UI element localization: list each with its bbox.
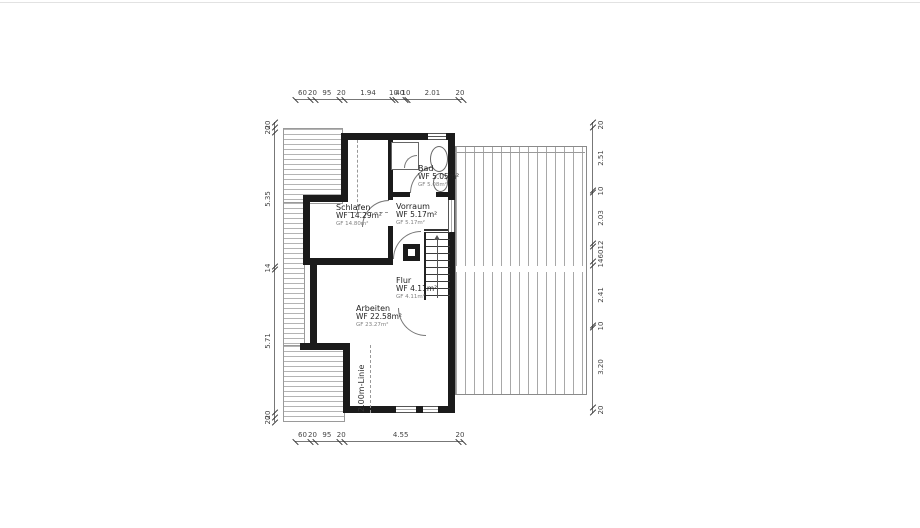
room-wf-area: WF 5.17m² (396, 211, 437, 220)
dimension-chain-bottom: 602095204.5520 (295, 441, 463, 442)
dimension-label: 4.55 (393, 431, 409, 439)
dimension-label: 20 (456, 431, 465, 439)
wall-schlafen-vorraum (388, 226, 393, 258)
room-wf-area: WF 5.05m² (418, 173, 459, 182)
window-bottom-1 (396, 406, 416, 413)
room-wf-area: WF 22.58m² (356, 313, 402, 322)
floor-plan-canvas: Schlafen WF 14.29m² GF 14.80m² Bad WF 5.… (0, 0, 920, 528)
dimension-label: 95 (322, 89, 331, 97)
dimension-label: 5.71 (264, 333, 272, 349)
room-label-schlafen: Schlafen WF 14.29m² GF 14.80m² (336, 203, 382, 228)
dimension-label: 20 (264, 125, 272, 134)
room-wf-area: WF 4.11m² (396, 285, 437, 294)
dimension-label: 14 (264, 263, 272, 272)
dimension-label: 3.20 (597, 359, 605, 375)
room-label-arbeiten: Arbeiten WF 22.58m² GF 23.27m² (356, 304, 402, 329)
dimension-label: 2.01 (425, 89, 441, 97)
page-top-rule (0, 2, 920, 3)
dimension-tick (292, 97, 298, 103)
dimension-label: 95 (322, 431, 331, 439)
dimension-label: 20 (597, 405, 605, 414)
dimension-label: 2.41 (597, 287, 605, 303)
dimension-label: 10 (402, 89, 411, 97)
window-bottom-2 (423, 406, 438, 413)
dimension-label: 12 (597, 240, 605, 249)
two-meter-line-label: 2.00m-Linie (357, 365, 366, 412)
dimension-label: 2.51 (597, 151, 605, 167)
wall-left-upper (341, 140, 348, 202)
roof-slope-dashed-line-v (357, 140, 358, 212)
stair-top-rail (424, 229, 448, 231)
dimension-label: 10 (597, 187, 605, 196)
dimension-label: 1.94 (360, 89, 376, 97)
dimension-label: 60 (298, 431, 307, 439)
dimension-label: 20 (456, 89, 465, 97)
room-label-bad: Bad WF 5.05m² GF 5.08m² (418, 164, 459, 189)
room-gf-area: GF 5.17m² (396, 220, 437, 226)
window-bad-top (428, 133, 446, 140)
dimension-tick (590, 410, 596, 416)
two-meter-dashed-line (370, 345, 371, 413)
dimension-tick (292, 439, 298, 445)
room-label-vorraum: Vorraum WF 5.17m² GF 5.17m² (396, 202, 437, 227)
left-roof-hatch-lower (283, 345, 345, 422)
dimension-label: 20 (597, 120, 605, 129)
wall-step-bottom (300, 343, 350, 350)
dimension-label: 2.03 (597, 210, 605, 226)
stair-direction-line (437, 240, 438, 298)
wall-left-lower (310, 265, 317, 343)
dimension-chain-left: 20205.35145.712020 (274, 122, 275, 422)
right-roof-ridge-band (456, 266, 584, 272)
dimension-label: 14 (597, 258, 605, 267)
left-roof-hatch-upper (283, 128, 343, 204)
dimension-label: 60 (597, 249, 605, 258)
right-roof-eave-line (455, 152, 585, 153)
room-gf-area: GF 5.08m² (418, 182, 459, 188)
dimension-label: 5.35 (264, 191, 272, 207)
room-wf-area: WF 14.29m² (336, 212, 382, 221)
dimension-label: 20 (264, 415, 272, 424)
wall-step-top (303, 195, 348, 202)
left-roof-hatch-strip (283, 202, 305, 347)
wall-left-bottom (343, 350, 350, 406)
dimension-label: 60 (298, 89, 307, 97)
wall-mid-horizontal (303, 258, 393, 265)
room-gf-area: GF 14.80m² (336, 221, 382, 227)
wall-left-middle (303, 202, 310, 265)
stair-arrow-icon (434, 235, 440, 240)
dimension-chain-right: 202.51102.031260142.41103.2020 (592, 122, 593, 413)
room-gf-area: GF 4.11m² (396, 294, 437, 300)
room-label-flur: Flur WF 4.11m² GF 4.11m² (396, 276, 437, 301)
room-gf-area: GF 23.27m² (356, 322, 402, 328)
window-right-stair (448, 200, 455, 232)
arbeiten-door-arc (398, 308, 426, 336)
dimension-chain-top: 602095201.941040102.0120 (295, 99, 463, 100)
dimension-label: 10 (597, 322, 605, 331)
flur-schlafen-door-arc (393, 231, 421, 259)
